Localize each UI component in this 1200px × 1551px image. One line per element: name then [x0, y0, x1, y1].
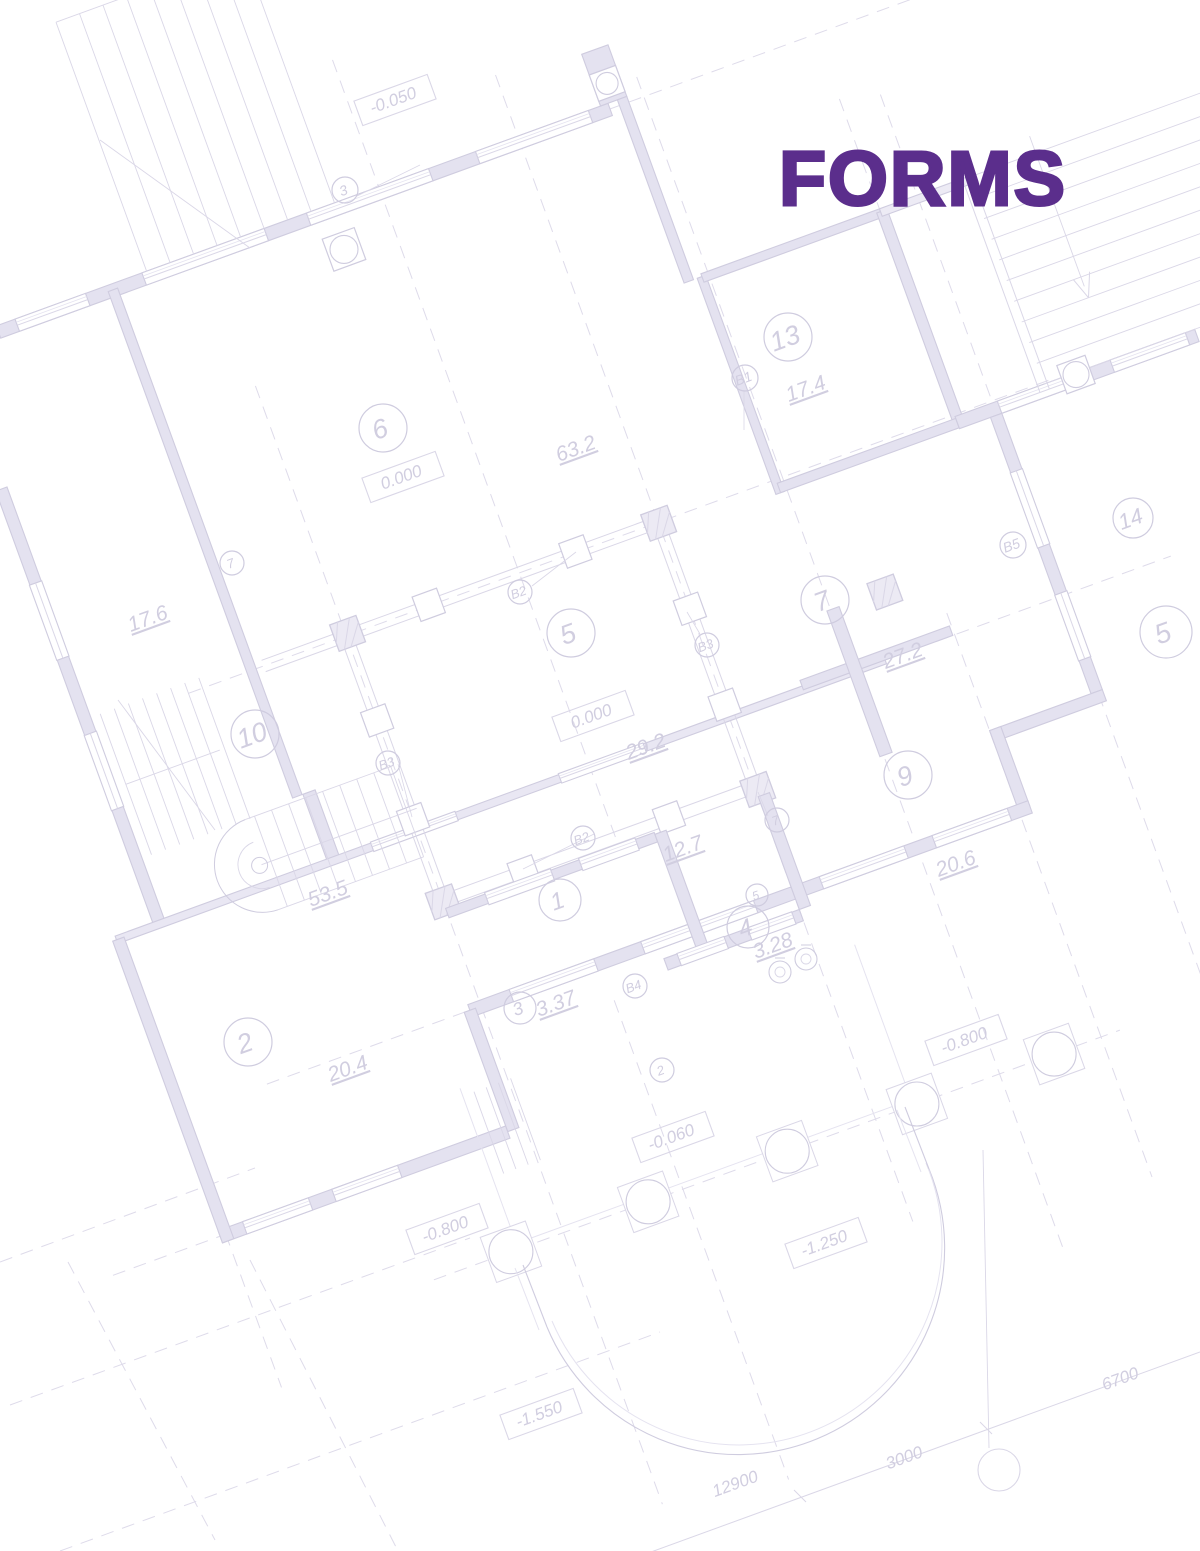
- svg-text:29.2: 29.2: [622, 729, 670, 765]
- svg-text:-0.060: -0.060: [645, 1120, 697, 1155]
- svg-text:3000: 3000: [883, 1442, 926, 1473]
- svg-text:B3: B3: [695, 635, 716, 655]
- svg-text:-0.800: -0.800: [938, 1023, 990, 1058]
- svg-text:7: 7: [224, 555, 237, 572]
- svg-text:B2: B2: [571, 828, 592, 848]
- svg-text:1: 1: [547, 887, 569, 917]
- svg-text:6700: 6700: [1099, 1363, 1142, 1394]
- svg-text:0.000: 0.000: [568, 700, 615, 733]
- svg-text:-0.050: -0.050: [367, 83, 419, 118]
- svg-text:17.6: 17.6: [125, 601, 172, 637]
- svg-text:5: 5: [1150, 616, 1176, 651]
- svg-text:9: 9: [893, 760, 917, 793]
- svg-text:53.5: 53.5: [305, 876, 352, 912]
- svg-text:20.4: 20.4: [324, 1051, 371, 1087]
- svg-text:20.6: 20.6: [932, 846, 980, 882]
- svg-text:3: 3: [510, 998, 526, 1020]
- svg-text:0.000: 0.000: [378, 461, 425, 494]
- svg-text:-1.550: -1.550: [513, 1397, 565, 1432]
- svg-text:27.2: 27.2: [879, 638, 927, 674]
- svg-text:7: 7: [810, 584, 835, 618]
- svg-text:6: 6: [368, 412, 393, 446]
- svg-text:-0.800: -0.800: [419, 1212, 471, 1247]
- svg-text:63.2: 63.2: [553, 431, 600, 467]
- svg-text:14: 14: [1115, 503, 1147, 535]
- svg-text:2: 2: [654, 1062, 668, 1079]
- svg-text:5: 5: [556, 617, 581, 651]
- svg-text:2: 2: [232, 1027, 257, 1061]
- svg-text:B4: B4: [623, 977, 643, 997]
- svg-text:17.4: 17.4: [783, 371, 829, 407]
- svg-text:B2: B2: [508, 582, 529, 602]
- svg-text:-1.250: -1.250: [798, 1226, 850, 1261]
- svg-text:B3: B3: [376, 753, 397, 773]
- svg-text:B5: B5: [1001, 535, 1023, 556]
- svg-text:13: 13: [766, 319, 804, 357]
- svg-text:3: 3: [337, 181, 350, 199]
- svg-text:12900: 12900: [710, 1467, 761, 1501]
